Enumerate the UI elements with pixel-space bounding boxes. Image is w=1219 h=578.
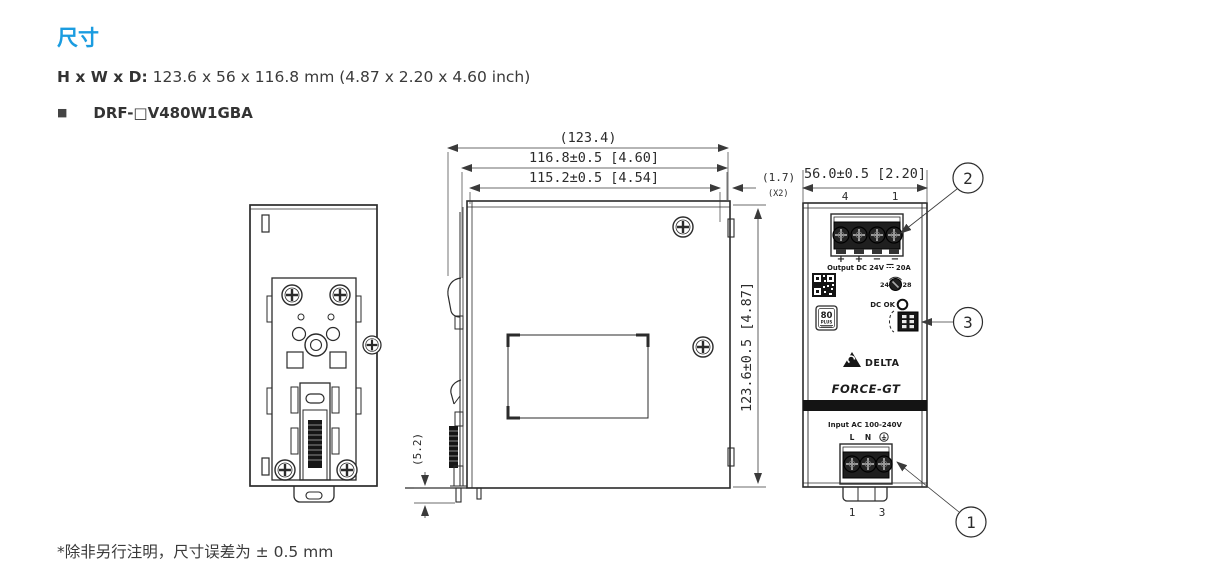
output-current-label: 20A <box>896 264 911 272</box>
dimension-lines: (123.4) 116.8±0.5 [4.60] 115.2±0.5 [4.54… <box>411 130 795 518</box>
rear-view <box>250 205 381 502</box>
callout-1-number: 1 <box>966 513 976 532</box>
badge-plus-label: PLUS <box>821 320 833 325</box>
dim-clip: (5.2) <box>411 433 424 466</box>
earth-ground-icon <box>880 433 888 441</box>
callout-1: 1 <box>897 462 986 537</box>
dim-depth: 116.8±0.5 [4.60] <box>529 150 659 166</box>
bottom-pin-3: 3 <box>879 506 886 519</box>
callout-3-number: 3 <box>963 313 973 332</box>
led-icon <box>898 300 908 310</box>
dc-symbol-icon <box>887 265 894 268</box>
dim-width: 56.0±0.5 [2.20] <box>804 166 926 182</box>
bottom-pin-1: 1 <box>849 506 856 519</box>
dimension-drawing: (123.4) 116.8±0.5 [4.60] 115.2±0.5 [4.54… <box>0 0 1219 578</box>
terminal-pin-1: 1 <box>892 190 899 203</box>
front-view: 56.0±0.5 [2.20] 4 1 + <box>803 166 927 519</box>
callouts: 2 3 1 <box>897 163 986 537</box>
callout-2-number: 2 <box>963 169 973 188</box>
brand-label: DELTA <box>865 358 900 369</box>
line-terminal-label: L <box>850 433 855 442</box>
voltage-adjust: 24 28 <box>880 277 912 290</box>
input-terminal-block <box>840 444 892 484</box>
din-clip-rear <box>291 383 339 480</box>
adjust-max-label: 28 <box>903 281 913 289</box>
dim-overall-depth: (123.4) <box>560 130 617 146</box>
80plus-badge: 80 PLUS <box>816 306 837 330</box>
output-rating-label: Output DC 24V <box>827 264 885 272</box>
dc-ok-label: DC OK <box>870 301 895 309</box>
dim-body-depth: 115.2±0.5 [4.54] <box>529 170 659 186</box>
signal-connector <box>890 311 919 332</box>
input-rating-label: Input AC 100-240V <box>828 421 902 429</box>
callout-3: 3 <box>922 308 983 337</box>
output-terminal-block <box>831 214 903 256</box>
din-rail-profile <box>448 207 481 502</box>
dim-offset-qty: (X2) <box>768 189 788 199</box>
dc-ok-indicator: DC OK <box>870 300 907 310</box>
dim-height: 123.6±0.5 [4.87] <box>739 282 755 412</box>
divider-bar <box>803 400 927 411</box>
delta-logo: DELTA <box>843 352 900 369</box>
datasheet-page: 尺寸 H x W x D: 123.6 x 56 x 116.8 mm (4.8… <box>0 0 1219 578</box>
qr-code <box>812 273 836 297</box>
series-label: FORCE-GT <box>832 382 901 396</box>
adjust-min-label: 24 <box>880 281 890 289</box>
tolerance-footnote: *除非另行注明，尺寸误差为 ± 0.5 mm <box>57 540 333 562</box>
side-view <box>405 201 734 502</box>
label-window <box>508 335 648 418</box>
neutral-terminal-label: N <box>865 433 871 442</box>
terminal-pin-4: 4 <box>842 190 849 203</box>
dim-offset: (1.7) <box>762 171 795 184</box>
